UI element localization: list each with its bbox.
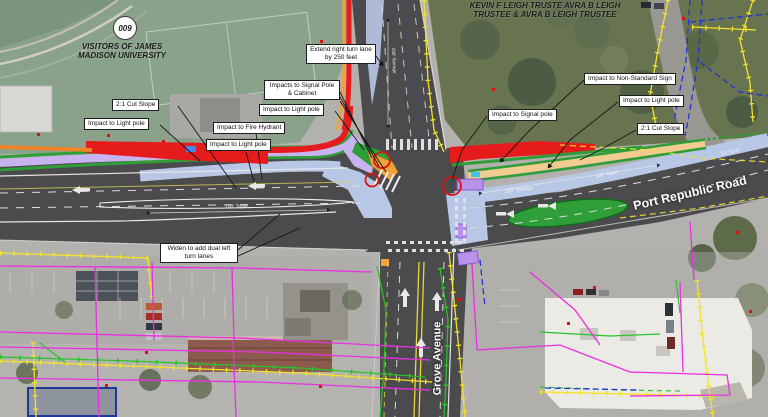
road-name-grove-avenue: Grove Avenue [432, 313, 445, 405]
parcel-owner-west: VISITORS OF JAMES MADISON UNIVERSITY [52, 42, 192, 60]
callout-extend-right-turn: Extend right turn lane by 250 feet [306, 44, 376, 64]
roadway-improvement-plan: 150' Taper 100' Storage 100' Taper 50' T… [0, 0, 768, 417]
callout-signal-pole-east: Impact to Signal pole [488, 109, 557, 121]
callout-light-pole-west: Impact to Light pole [84, 118, 149, 130]
callout-light-pole-center: Impact to Light pole [259, 104, 324, 116]
outlined-building [28, 388, 116, 416]
callout-fire-hydrant: Impact to Fire Hydrant [213, 122, 285, 134]
solar-array [76, 271, 138, 301]
callout-signal-pole-cabinet: Impacts to Signal Pole & Cabinet [264, 80, 340, 100]
callout-widen-dual-left: Widen to add dual left turn lanes [160, 243, 238, 263]
callout-light-pole-east: Impact to Light pole [619, 95, 684, 107]
building [0, 86, 52, 132]
parcel-owner-north: KEVIN F LEIGH TRUSTE AVRA B LEIGH TRUSTE… [400, 1, 690, 19]
parcel-number-badge: 009 [113, 16, 137, 40]
callout-cut-slope-east: 2:1 Cut Slope [637, 123, 684, 135]
callout-light-pole-mid: Impact to Light pole [206, 139, 271, 151]
callout-non-standard-sign: Impact to Non-Standard Sign [584, 73, 676, 85]
taper-label-west: 150' Taper [225, 204, 249, 210]
callout-cut-slope-west: 2:1 Cut Slope [112, 99, 159, 111]
